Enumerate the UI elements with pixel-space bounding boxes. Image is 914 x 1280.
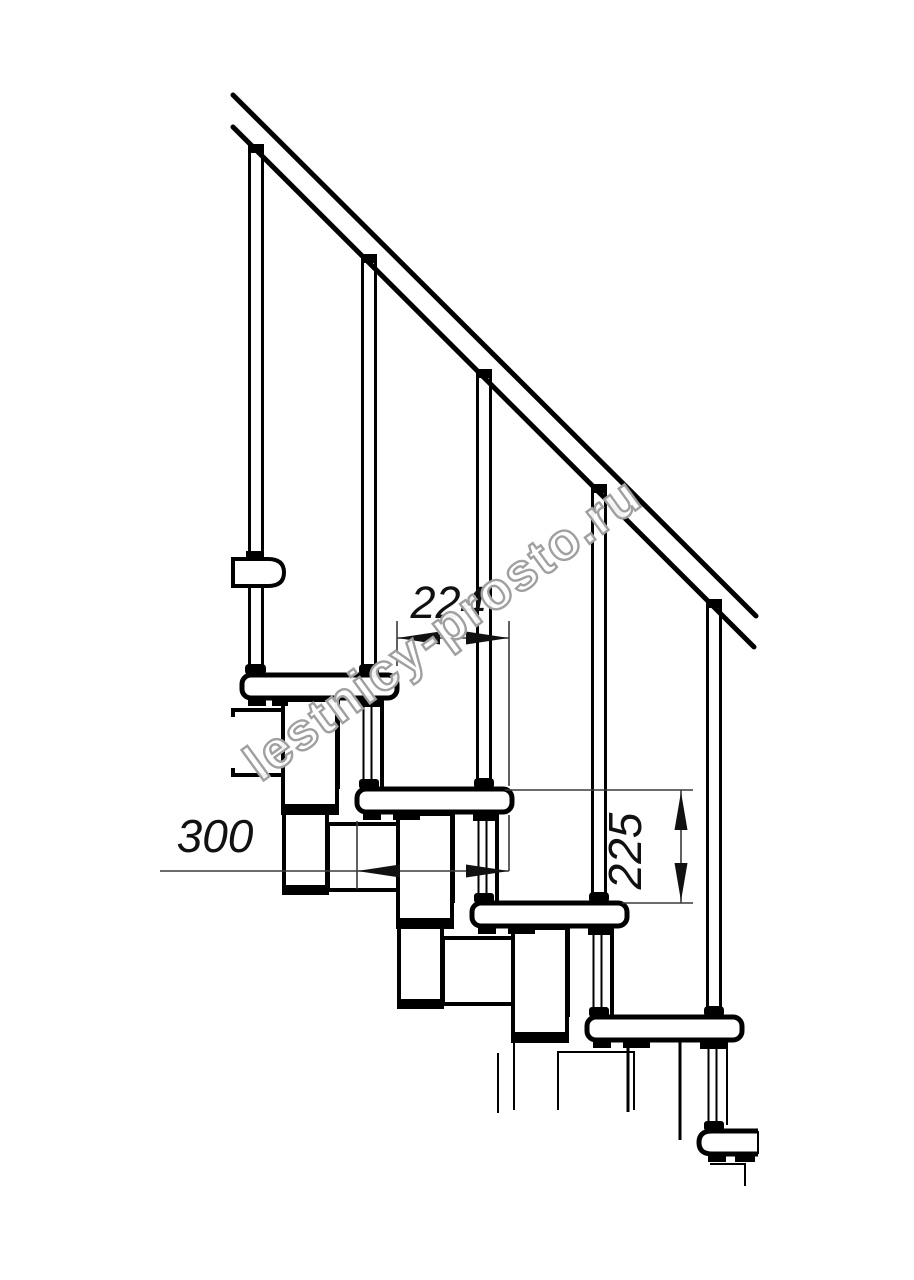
tread-5-cut bbox=[699, 1131, 758, 1154]
staircase-technical-drawing: 224 300 225 lestnicy-prosto.ru bbox=[0, 0, 914, 1280]
dimension-300-label: 300 bbox=[177, 810, 254, 862]
dimension-225: 225 bbox=[505, 790, 693, 903]
wall-bracket bbox=[233, 551, 284, 586]
dimension-225-label: 225 bbox=[599, 812, 651, 890]
baluster-1 bbox=[248, 144, 264, 672]
arrow-up-icon bbox=[675, 792, 688, 830]
tread-2 bbox=[357, 789, 512, 812]
module-step-4 bbox=[628, 1041, 745, 1186]
baluster-5 bbox=[706, 599, 722, 1012]
tread-3 bbox=[472, 903, 627, 926]
baluster-2 bbox=[361, 254, 377, 670]
watermark-text: lestnicy-prosto.ru bbox=[234, 466, 653, 792]
arrow-down-icon bbox=[675, 863, 688, 901]
drawing-page: 224 300 225 lestnicy-prosto.ru bbox=[0, 0, 914, 1280]
tread-4 bbox=[587, 1017, 742, 1040]
